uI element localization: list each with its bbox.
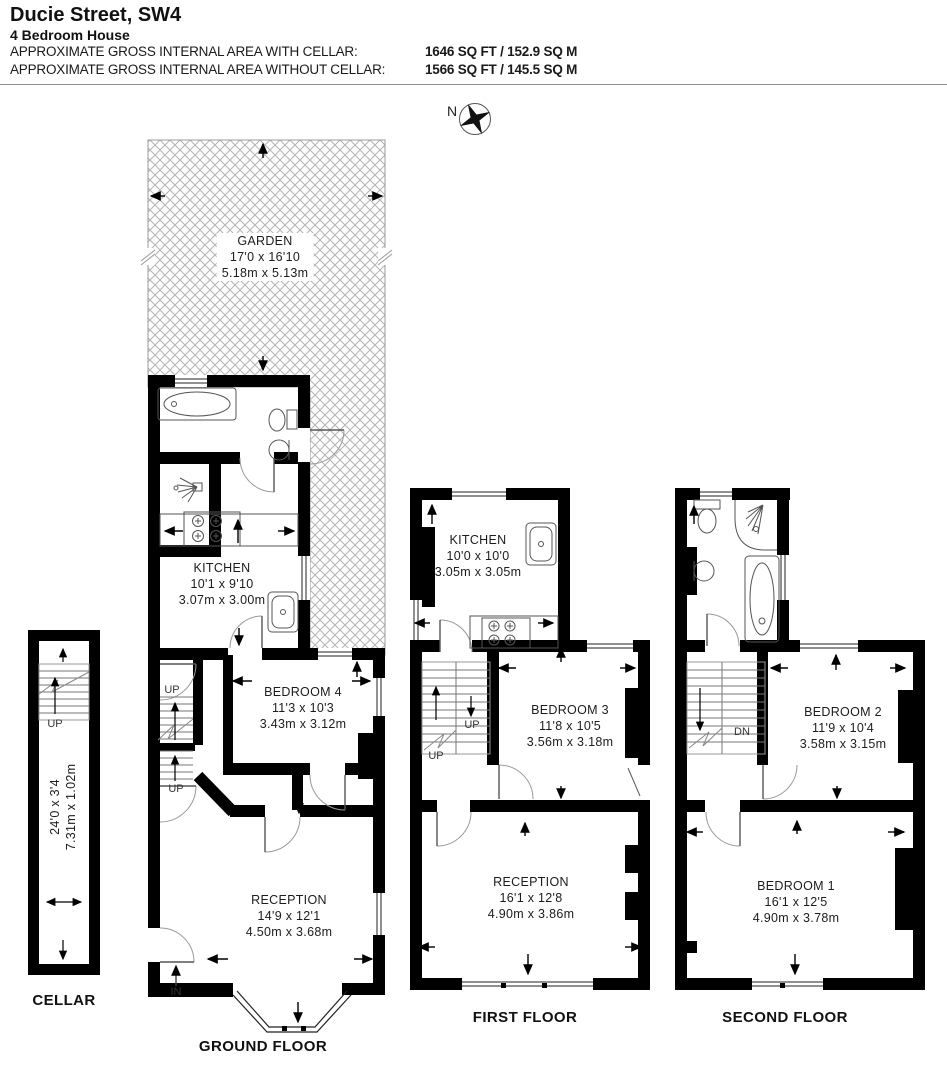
room-dims-metric: 4.50m x 3.68m bbox=[246, 924, 333, 940]
area-label: APPROXIMATE GROSS INTERNAL AREA WITH CEL… bbox=[10, 44, 358, 59]
room-name: GARDEN bbox=[222, 233, 309, 249]
cellar-up-label: UP bbox=[47, 718, 62, 730]
garden-label: GARDEN 17'0 x 16'10 5.18m x 5.13m bbox=[217, 233, 314, 281]
bathtub-icon bbox=[745, 556, 779, 642]
kitchen-sink-icon bbox=[526, 523, 556, 565]
room-dims-imperial: 17'0 x 16'10 bbox=[222, 249, 309, 265]
stairs-icon bbox=[687, 662, 765, 754]
shower-icon bbox=[174, 478, 202, 502]
room-dims-imperial: 11'3 x 10'3 bbox=[260, 700, 347, 716]
room-dims-metric: 3.07m x 3.00m bbox=[179, 592, 266, 608]
page-title: Ducie Street, SW4 bbox=[10, 4, 181, 27]
compass-icon bbox=[460, 104, 491, 135]
area-value: 1566 SQ FT / 145.5 SQ M bbox=[425, 62, 577, 77]
room-dims-imperial: 10'1 x 9'10 bbox=[179, 576, 266, 592]
ff-kitchen-label: KITCHEN 10'0 x 10'0 3.05m x 3.05m bbox=[435, 532, 522, 580]
room-dims-imperial: 10'0 x 10'0 bbox=[435, 548, 522, 564]
room-dims-imperial: 24'0 x 3'4 bbox=[47, 764, 63, 851]
bedroom2-label: BEDROOM 2 11'9 x 10'4 3.58m x 3.15m bbox=[800, 704, 887, 752]
gf-up-label-2: UP bbox=[168, 783, 183, 795]
room-name: BEDROOM 4 bbox=[260, 684, 347, 700]
stairs-icon bbox=[39, 664, 89, 720]
first-floor-label: FIRST FLOOR bbox=[473, 1009, 577, 1026]
toilet-icon bbox=[269, 409, 297, 431]
room-name: BEDROOM 2 bbox=[800, 704, 887, 720]
room-dims-metric: 4.90m x 3.86m bbox=[488, 906, 575, 922]
area-value: 1646 SQ FT / 152.9 SQ M bbox=[425, 44, 577, 59]
header-divider bbox=[0, 84, 947, 85]
room-dims-metric: 3.43m x 3.12m bbox=[260, 716, 347, 732]
room-dims-metric: 3.58m x 3.15m bbox=[800, 736, 887, 752]
room-name: BEDROOM 1 bbox=[753, 878, 840, 894]
ff-up-label-2: UP bbox=[428, 750, 443, 762]
room-dims-metric: 3.05m x 3.05m bbox=[435, 564, 522, 580]
page-subtitle: 4 Bedroom House bbox=[10, 27, 130, 43]
toilet-icon bbox=[694, 500, 720, 533]
ground-floor-label: GROUND FLOOR bbox=[199, 1038, 327, 1055]
cellar-label: CELLAR bbox=[32, 992, 95, 1009]
shower-icon bbox=[735, 500, 777, 550]
room-dims-imperial: 11'9 x 10'4 bbox=[800, 720, 887, 736]
gf-kitchen-label: KITCHEN 10'1 x 9'10 3.07m x 3.00m bbox=[179, 560, 266, 608]
area-label: APPROXIMATE GROSS INTERNAL AREA WITHOUT … bbox=[10, 62, 385, 77]
cellar-dims-label: 24'0 x 3'4 7.31m x 1.02m bbox=[47, 764, 79, 851]
room-dims-imperial: 16'1 x 12'5 bbox=[753, 894, 840, 910]
gf-up-label-1: UP bbox=[164, 684, 179, 696]
room-dims-metric: 7.31m x 1.02m bbox=[63, 764, 79, 851]
area-line-with-cellar: APPROXIMATE GROSS INTERNAL AREA WITH CEL… bbox=[10, 44, 358, 59]
floorplan-page: Ducie Street, SW4 4 Bedroom House APPROX… bbox=[0, 0, 947, 1080]
room-dims-imperial: 16'1 x 12'8 bbox=[488, 890, 575, 906]
entrance-label: IN bbox=[171, 986, 182, 998]
stairs-icon bbox=[422, 662, 490, 754]
bedroom1-label: BEDROOM 1 16'1 x 12'5 4.90m x 3.78m bbox=[753, 878, 840, 926]
compass-north-label: N bbox=[447, 103, 457, 119]
bathtub-icon bbox=[158, 388, 236, 420]
room-dims-metric: 3.56m x 3.18m bbox=[527, 734, 614, 750]
room-name: RECEPTION bbox=[246, 892, 333, 908]
area-line-without-cellar: APPROXIMATE GROSS INTERNAL AREA WITHOUT … bbox=[10, 62, 385, 77]
sf-down-label: DN bbox=[734, 726, 750, 738]
bedroom4-label: BEDROOM 4 11'3 x 10'3 3.43m x 3.12m bbox=[260, 684, 347, 732]
ff-reception-label: RECEPTION 16'1 x 12'8 4.90m x 3.86m bbox=[488, 874, 575, 922]
gf-reception-label: RECEPTION 14'9 x 12'1 4.50m x 3.68m bbox=[246, 892, 333, 940]
room-name: RECEPTION bbox=[488, 874, 575, 890]
room-dims-metric: 4.90m x 3.78m bbox=[753, 910, 840, 926]
room-dims-imperial: 14'9 x 12'1 bbox=[246, 908, 333, 924]
room-name: KITCHEN bbox=[179, 560, 266, 576]
stairs-arrow bbox=[436, 687, 471, 720]
second-floor-label: SECOND FLOOR bbox=[722, 1009, 848, 1026]
door-arc bbox=[437, 620, 533, 846]
bedroom3-label: BEDROOM 3 11'8 x 10'5 3.56m x 3.18m bbox=[527, 702, 614, 750]
room-name: KITCHEN bbox=[435, 532, 522, 548]
room-dims-imperial: 11'8 x 10'5 bbox=[527, 718, 614, 734]
kitchen-sink-icon bbox=[268, 592, 298, 632]
bay-window bbox=[233, 991, 351, 1032]
ff-up-label-1: UP bbox=[464, 719, 479, 731]
room-name: BEDROOM 3 bbox=[527, 702, 614, 718]
room-dims-metric: 5.18m x 5.13m bbox=[222, 265, 309, 281]
stove-icon bbox=[160, 512, 298, 546]
